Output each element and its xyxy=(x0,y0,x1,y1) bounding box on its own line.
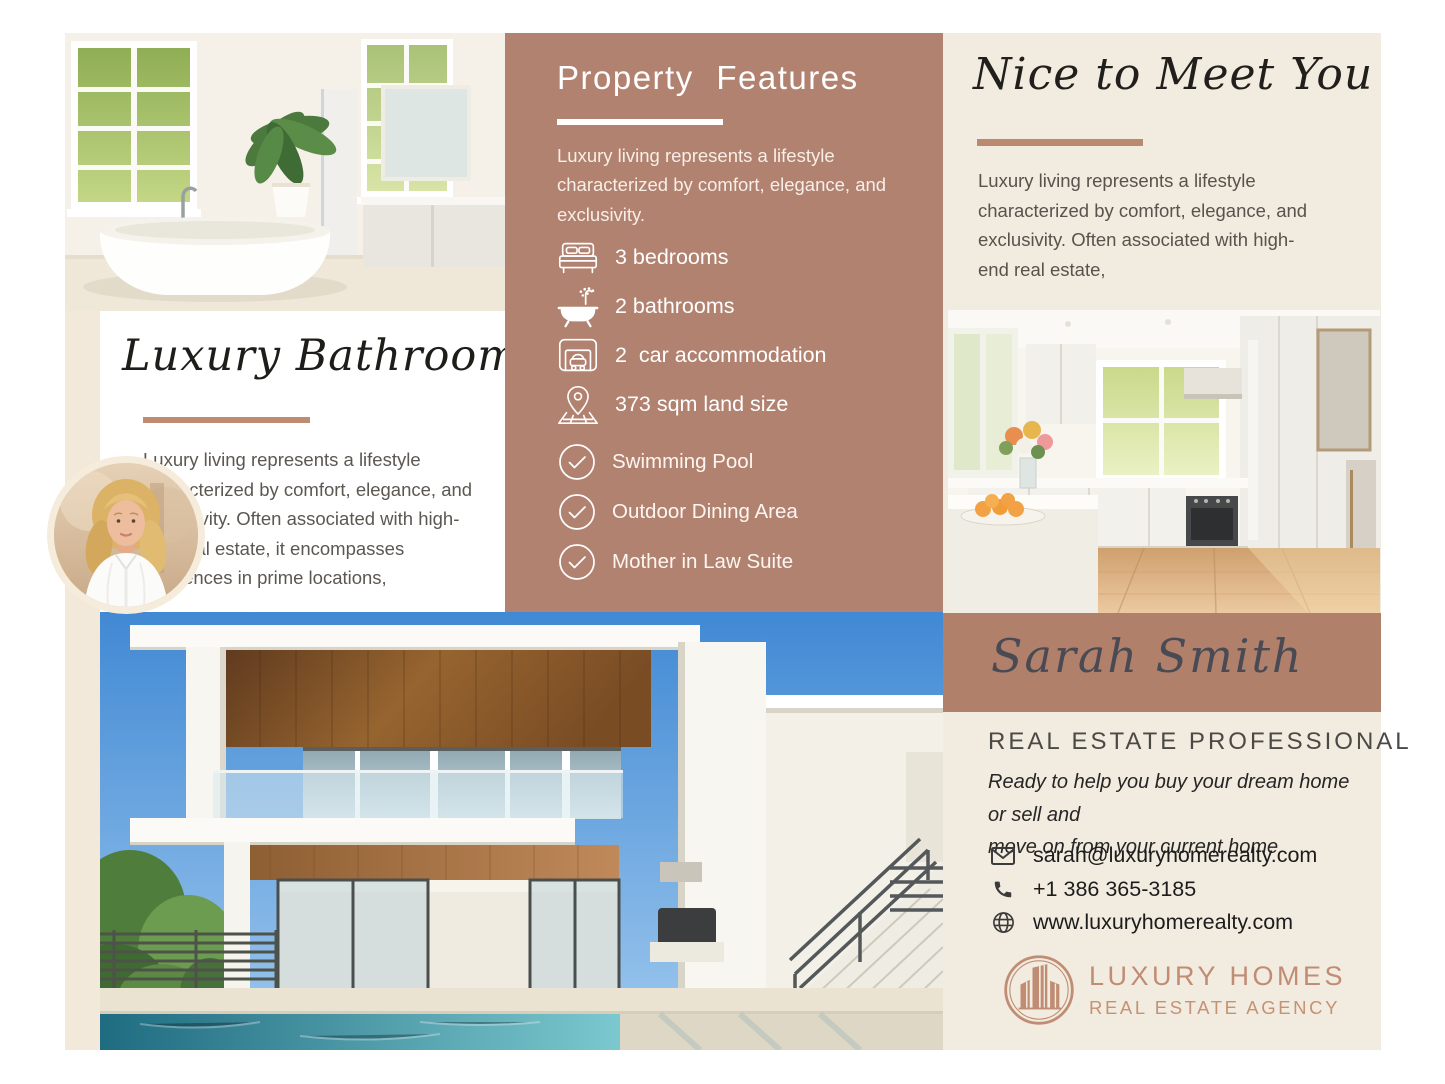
bathtub-icon xyxy=(555,285,601,329)
property-features-panel: Property Features Luxury living represen… xyxy=(505,33,943,612)
features-title-underline xyxy=(557,119,723,125)
phone-icon xyxy=(990,876,1016,902)
feature-label: 2 bathrooms xyxy=(615,294,735,319)
feature-row-garage: 2 car accommodation xyxy=(555,331,827,380)
amenities-list: Swimming Pool Outdoor Dining Area Mother… xyxy=(558,437,798,587)
feature-row-land: 373 sqm land size xyxy=(555,380,827,429)
bathroom-title: Luxury Bathroom xyxy=(122,331,519,381)
features-intro: Luxury living represents a lifestyle cha… xyxy=(557,141,907,229)
contact-row-email: sarah@luxuryhomerealty.com xyxy=(990,839,1317,873)
agent-role: REAL ESTATE PROFESSIONAL xyxy=(988,728,1412,756)
feature-row-bedrooms: 3 bedrooms xyxy=(555,233,827,282)
feature-row-bathrooms: 2 bathrooms xyxy=(555,282,827,331)
logo-subtitle: REAL ESTATE AGENCY xyxy=(1089,997,1346,1019)
agent-portrait xyxy=(47,456,205,614)
globe-icon xyxy=(990,910,1016,936)
features-title: Property Features xyxy=(557,59,859,97)
feature-label: 3 bedrooms xyxy=(615,245,729,270)
real-estate-flyer: Luxury Bathroom Luxury living represents… xyxy=(0,0,1445,1084)
contact-row-phone: +1 386 365-3185 xyxy=(990,873,1317,907)
bathroom-photo xyxy=(65,33,505,311)
map-pin-icon xyxy=(555,383,601,427)
left-cream-strip xyxy=(65,311,100,1050)
phone-value[interactable]: +1 386 365-3185 xyxy=(1033,877,1196,902)
amenity-row-suite: Mother in Law Suite xyxy=(558,537,798,587)
about-title-underline xyxy=(977,139,1143,146)
kitchen-photo xyxy=(948,310,1380,613)
bathroom-title-underline xyxy=(143,417,310,423)
agent-name-band: Sarah Smith xyxy=(943,613,1381,712)
logo-text: LUXURY HOMES REAL ESTATE AGENCY xyxy=(1089,961,1346,1019)
feature-label: 2 car accommodation xyxy=(615,343,827,368)
amenity-row-dining: Outdoor Dining Area xyxy=(558,487,798,537)
website-value[interactable]: www.luxuryhomerealty.com xyxy=(1033,910,1293,935)
garage-icon xyxy=(555,334,601,378)
contact-row-website: www.luxuryhomerealty.com xyxy=(990,906,1317,940)
buildings-logo-icon xyxy=(1002,953,1076,1027)
check-circle-icon xyxy=(558,443,596,481)
bed-icon xyxy=(555,236,601,280)
email-icon xyxy=(990,843,1016,869)
agent-name: Sarah Smith xyxy=(991,629,1304,683)
amenity-label: Mother in Law Suite xyxy=(612,550,793,574)
about-paragraph: Luxury living represents a lifestyle cha… xyxy=(978,166,1338,284)
feature-label: 373 sqm land size xyxy=(615,392,788,417)
house-exterior-photo xyxy=(100,612,943,1050)
amenity-label: Swimming Pool xyxy=(612,450,753,474)
about-title: Nice to Meet You xyxy=(973,49,1373,100)
agency-logo: LUXURY HOMES REAL ESTATE AGENCY xyxy=(1002,953,1346,1027)
email-value[interactable]: sarah@luxuryhomerealty.com xyxy=(1033,843,1317,868)
amenity-row-pool: Swimming Pool xyxy=(558,437,798,487)
features-list: 3 bedrooms 2 bathrooms xyxy=(555,233,827,429)
check-circle-icon xyxy=(558,543,596,581)
amenity-label: Outdoor Dining Area xyxy=(612,500,798,524)
contact-list: sarah@luxuryhomerealty.com +1 386 365-31… xyxy=(990,839,1317,940)
logo-name: LUXURY HOMES xyxy=(1089,961,1346,992)
check-circle-icon xyxy=(558,493,596,531)
